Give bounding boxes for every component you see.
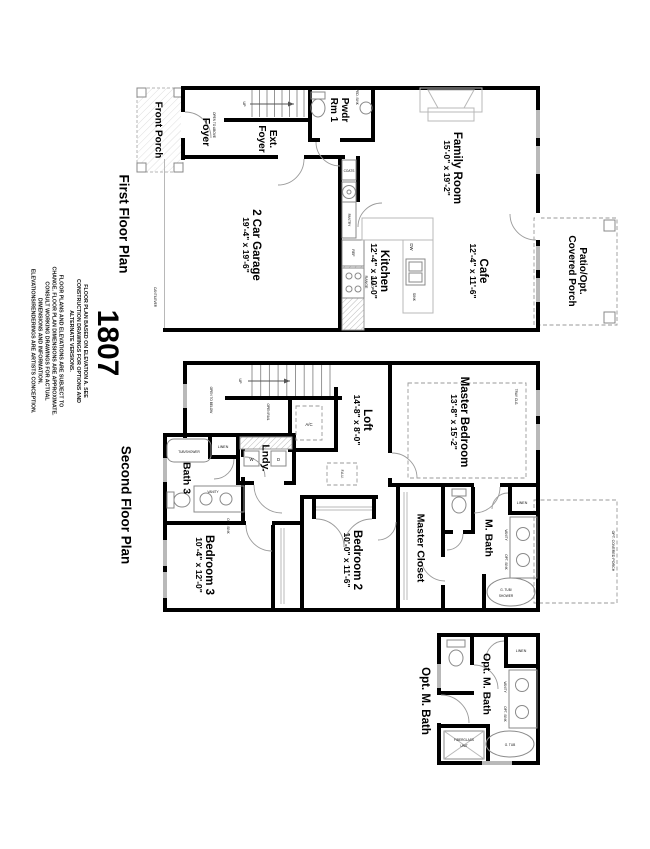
svg-text:G. TUB/: G. TUB/ [500, 588, 512, 592]
toilet-icon [452, 489, 466, 513]
door-arcs-first-floor [185, 112, 536, 240]
first-floor-plan: Front Porch Foyer Ext. Foyer Pwdr Rm 1 2… [137, 86, 617, 332]
stairs-first-floor [250, 90, 304, 117]
optbath-vanity-icon [509, 670, 537, 728]
label-bath-3: Bath 3 [181, 462, 193, 494]
note-g-tub: G. TUB [505, 743, 516, 747]
note-gtub-shower: G. TUB/ SHOWER [499, 588, 514, 598]
label-front-porch: Front Porch [153, 102, 164, 159]
note-mb-vanity: VANITY [504, 529, 508, 541]
note-linen: LINEN [516, 649, 527, 653]
label-master-closet: Master Closet [415, 514, 427, 583]
note-opt-covered-porch: OPT. COVERED PORCH [611, 531, 615, 572]
opt-covered-porch-outline [534, 500, 617, 603]
note-mb-linen: LINEN [517, 501, 528, 505]
garden-tub-icon [487, 578, 535, 606]
svg-text:10'-0" x 11'-6": 10'-0" x 11'-6" [342, 532, 352, 587]
range-icon [342, 268, 364, 298]
note-open-below: OPEN TO BELOW [209, 387, 213, 414]
second-floor-plan: Loft 14'-8" x 8'-0" Master Bedroom 13'-8… [163, 361, 617, 612]
note-ped-sink: PED. SINK [355, 89, 359, 106]
disclaimer-line-2: FLOOR PLANS AND ELEVATIONS ARE SUBJECT T… [29, 266, 64, 416]
svg-text:RANGE: RANGE [364, 276, 368, 289]
toilet-icon [447, 640, 465, 666]
label-ext-foyer: Ext. Foyer [256, 125, 278, 152]
note-open-rail: OPEN RAIL [266, 403, 270, 420]
svg-text:Covered Porch: Covered Porch [566, 235, 577, 306]
first-floor-title: First Floor Plan [117, 174, 132, 273]
pedestal-sink-icon [360, 102, 372, 114]
disclaimer-line-1: FLOOR PLAN BASED ON ELEVATION A. SEE CON… [67, 266, 88, 416]
label-bedroom-3: Bedroom 3 10'-4" x 12'-0" [194, 535, 215, 595]
svg-text:12'-4" x 10'-0": 12'-4" x 10'-0" [369, 243, 379, 299]
bath3-vanity-icon [194, 486, 244, 512]
floorplan-sheet: Front Porch Foyer Ext. Foyer Pwdr Rm 1 2… [0, 0, 650, 849]
label-foyer: Foyer [200, 118, 212, 147]
mbath-vanity-icon [510, 517, 537, 578]
svg-text:13'-8" x 15'-2": 13'-8" x 15'-2" [449, 394, 459, 450]
note-opt-sink: OPT. SINK [226, 518, 230, 534]
label-master-bedroom: Master Bedroom 13'-8" x 15'-2" [449, 377, 470, 468]
label-kitchen: Kitchen 12'-4" x 10'-0" [369, 243, 390, 299]
note-fau: F.A.U. [340, 470, 344, 479]
note-micro-range: MICRO RANGE [364, 276, 374, 289]
water-heater-icon [342, 182, 356, 202]
stairs-second-floor [248, 365, 330, 396]
svg-text:Rm 1: Rm 1 [328, 98, 339, 123]
svg-text:12'-4" x 11'-6": 12'-4" x 11'-6" [468, 243, 478, 298]
svg-text:Patio/Opt.: Patio/Opt. [577, 247, 588, 294]
note-mb-opt-sink: OPT. SINK [504, 554, 508, 570]
label-laundry: Lndy. [260, 444, 272, 471]
svg-text:Foyer: Foyer [256, 125, 267, 152]
up-arrow-icon [288, 102, 294, 107]
fireplace-icon [420, 88, 482, 121]
note-dryer: D [277, 457, 280, 462]
note-vanity: VANITY [503, 681, 507, 693]
note-dw: DW [409, 243, 414, 251]
label-patio: Patio/Opt. Covered Porch [566, 235, 588, 306]
svg-text:Ext.: Ext. [267, 130, 278, 149]
label-garage: 2 Car Garage 19'-4" x 19'-6" [241, 209, 262, 281]
svg-text:MICRO: MICRO [370, 276, 374, 288]
svg-text:19'-4" x 19'-6": 19'-4" x 19'-6" [241, 217, 251, 273]
note-tub-shower: TUB/SHOWER [178, 450, 200, 454]
svg-text:SHOWER: SHOWER [499, 594, 514, 598]
svg-text:UNIT: UNIT [460, 744, 467, 748]
opt-mbath-plan: Opt. M. Bath Opt. M. Bath LINEN VANITY O… [419, 633, 540, 765]
label-bedroom-2: Bedroom 2 10'-0" x 11'-6" [342, 530, 363, 590]
label-cafe: Cafe 12'-4" x 11'-6" [468, 243, 489, 298]
svg-text:Pwdr: Pwdr [339, 98, 350, 123]
disclaimer: FLOOR PLAN BASED ON ELEVATION A. SEE CON… [26, 266, 89, 416]
note-pantry: PANTRY [347, 214, 351, 228]
note-fiberglass-unit: FIBERGLASS UNIT [454, 738, 474, 748]
note-vanity: VANITY [207, 490, 219, 494]
note-up: UP [238, 379, 242, 385]
note-opt-sink: OPT. SINK [503, 706, 507, 722]
svg-text:FIBERGLASS: FIBERGLASS [454, 738, 474, 742]
toilet-icon [311, 92, 325, 117]
svg-text:10'-4" x 12'-0": 10'-4" x 12'-0" [194, 537, 204, 593]
note-coats: COATS [344, 169, 355, 173]
label-family-room: Family Room 15'-0" x 19'-2" [442, 132, 463, 204]
note-tray-clg: TRAY CLG. [514, 389, 518, 406]
kitchen-sink-icon [406, 259, 425, 285]
note-linen: LINEN [218, 445, 229, 449]
svg-text:14'-8" x 8'-0": 14'-8" x 8'-0" [352, 395, 362, 446]
note-cantilever: CANTILEVER [153, 287, 157, 308]
note-ac: A/C [305, 422, 312, 427]
label-pwdr-rm: Pwdr Rm 1 [328, 98, 350, 123]
second-floor-title: Second Floor Plan [119, 446, 134, 565]
plan-number: 1807 [91, 310, 124, 377]
label-loft: Loft 14'-8" x 8'-0" [352, 395, 373, 446]
note-open-above: OPEN TO ABOVE [212, 112, 216, 138]
note-sink: SINK [412, 293, 416, 302]
toilet-icon [167, 492, 190, 508]
label-opt-mbath: Opt. M. Bath [419, 667, 431, 735]
svg-text:15'-0" x 19'-2": 15'-0" x 19'-2" [442, 140, 452, 196]
label-opt-mbath-inner: Opt. M. Bath [481, 653, 493, 715]
label-m-bath: M. Bath [483, 519, 495, 557]
note-up: UP [242, 102, 246, 108]
floorplan-drawing: Front Porch Foyer Ext. Foyer Pwdr Rm 1 2… [0, 0, 650, 849]
note-ref: REF [351, 249, 355, 257]
